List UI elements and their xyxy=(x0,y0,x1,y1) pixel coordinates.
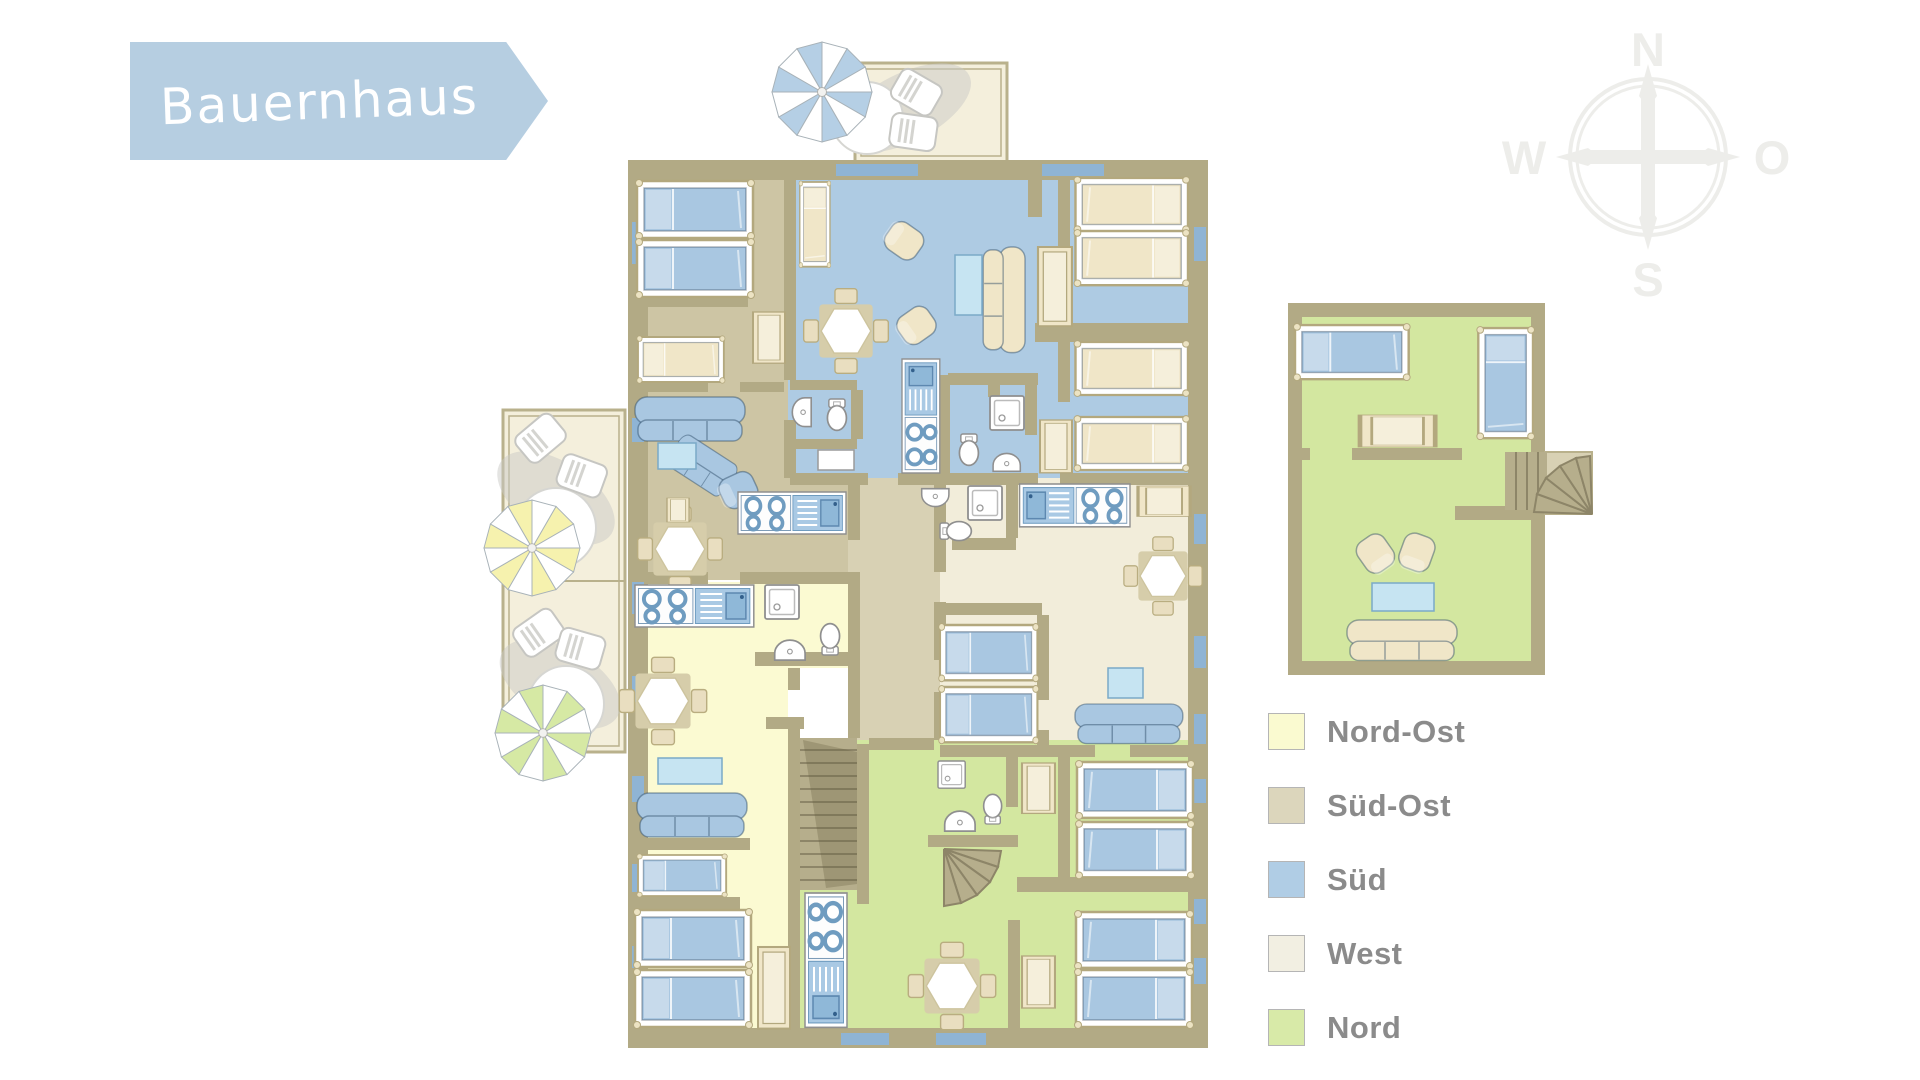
toilet-icon xyxy=(821,624,840,655)
sink-icon xyxy=(945,811,975,831)
bed-icon xyxy=(637,336,725,383)
bed-icon xyxy=(939,624,1039,682)
legend-item: Nord-Ost xyxy=(1268,713,1465,750)
side-table-icon xyxy=(667,498,689,522)
tv-icon xyxy=(1108,668,1143,698)
upper-floorplan xyxy=(1288,303,1592,675)
bed-icon xyxy=(1074,177,1189,233)
legend: Nord-OstSüd-OstSüdWestNord xyxy=(1268,713,1465,1046)
tv-icon xyxy=(658,758,722,784)
legend-item: Süd-Ost xyxy=(1268,787,1465,824)
kitchen-unit-icon xyxy=(635,585,754,627)
floorplan-graphic: N O S W xyxy=(0,0,1920,1080)
legend-item-label: Süd-Ost xyxy=(1327,788,1451,824)
wardrobe-icon xyxy=(1022,763,1055,813)
legend-item-label: Süd xyxy=(1327,862,1387,898)
compass-letter-n: N xyxy=(1631,23,1665,76)
bed-icon xyxy=(634,909,753,969)
toilet-icon xyxy=(959,434,978,465)
bed-icon xyxy=(799,181,831,268)
toilet-icon xyxy=(940,522,971,541)
toilet-icon xyxy=(827,399,846,430)
legend-swatch xyxy=(1268,861,1305,898)
stairs-icon xyxy=(800,738,857,890)
legend-item-label: Nord xyxy=(1327,1010,1401,1046)
bed-icon xyxy=(637,854,727,897)
wardrobe-icon xyxy=(753,312,785,363)
kitchen-unit-icon xyxy=(805,893,847,1027)
upper-stairs-icon xyxy=(1505,452,1592,514)
shower-icon xyxy=(938,761,965,788)
kitchen-unit-icon xyxy=(1020,484,1130,527)
legend-swatch xyxy=(1268,713,1305,750)
toilet-icon xyxy=(984,794,1002,824)
dresser-icon xyxy=(1360,415,1435,447)
compass-rose: N O S W xyxy=(1502,23,1790,306)
sofa-icon xyxy=(635,397,745,441)
tv-icon xyxy=(955,255,982,315)
bed-icon xyxy=(1076,821,1195,879)
sofa-icon xyxy=(637,793,747,837)
bed-icon xyxy=(1294,324,1411,381)
sofa-icon xyxy=(1075,704,1183,744)
title-banner: Bauernhaus xyxy=(130,42,548,160)
page-title: Bauernhaus xyxy=(159,66,520,136)
bed-icon xyxy=(1477,327,1535,440)
bed-icon xyxy=(1075,969,1194,1029)
legend-item-label: West xyxy=(1327,936,1403,972)
stairwell-floor xyxy=(848,478,940,740)
sofa-icon xyxy=(1347,620,1457,660)
main-floorplan xyxy=(619,160,1208,1048)
compass-letter-s: S xyxy=(1632,253,1663,306)
legend-swatch xyxy=(1268,787,1305,824)
bed-icon xyxy=(1074,341,1189,397)
bed-icon xyxy=(636,239,755,299)
wardrobe-icon xyxy=(758,947,790,1029)
wardrobe-icon xyxy=(1022,956,1055,1008)
floorplan-page: N O S W xyxy=(0,0,1920,1080)
sink-icon xyxy=(775,640,805,660)
bed-icon xyxy=(939,686,1039,744)
legend-item: West xyxy=(1268,935,1465,972)
legend-item: Süd xyxy=(1268,861,1465,898)
wardrobe-icon xyxy=(1040,420,1072,473)
bed-icon xyxy=(1076,761,1195,820)
legend-swatch xyxy=(1268,935,1305,972)
legend-item: Nord xyxy=(1268,1009,1465,1046)
sink-icon xyxy=(993,453,1020,471)
legend-item-label: Nord-Ost xyxy=(1327,714,1465,750)
coffee-table-icon xyxy=(1372,583,1434,611)
bed-icon xyxy=(634,969,753,1029)
bed-icon xyxy=(1075,911,1194,970)
shower-icon xyxy=(765,585,799,619)
kitchen-unit-icon xyxy=(902,359,940,473)
wardrobe-icon xyxy=(1038,247,1072,326)
fridge-icon xyxy=(1138,486,1190,516)
lounger-icon xyxy=(888,112,938,152)
sink-icon xyxy=(922,489,949,507)
compass-letter-o: O xyxy=(1754,131,1791,184)
washer-icon xyxy=(818,450,854,470)
sofa-icon xyxy=(983,247,1025,353)
tv-icon xyxy=(658,443,696,469)
compass-letter-w: W xyxy=(1502,131,1547,184)
bed-icon xyxy=(1074,416,1189,472)
legend-swatch xyxy=(1268,1009,1305,1046)
bed-icon xyxy=(636,180,755,240)
sink-icon xyxy=(792,398,811,427)
shower-icon xyxy=(968,486,1002,520)
shower-icon xyxy=(990,396,1024,430)
kitchen-unit-icon xyxy=(738,492,846,534)
bed-icon xyxy=(1074,230,1189,287)
